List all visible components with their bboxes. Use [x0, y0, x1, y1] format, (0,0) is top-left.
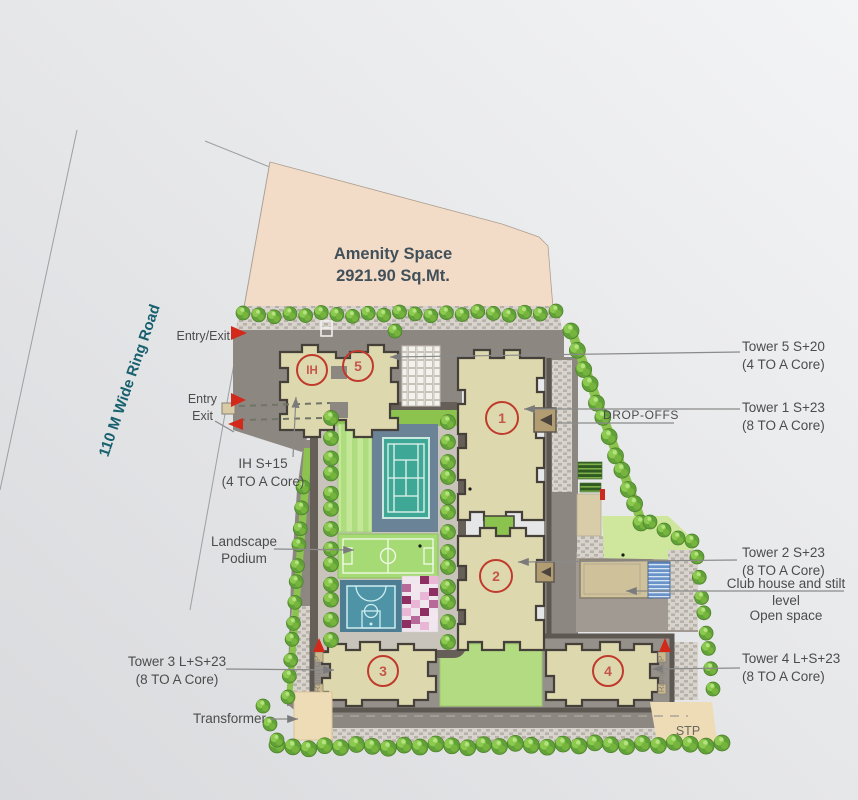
label-drop-offs: DROP-OFFS	[603, 408, 679, 422]
tower-4-footprint	[546, 642, 658, 706]
club-pool-deck	[648, 562, 670, 598]
label-ramp-up-west: Ramp UP	[312, 655, 322, 692]
southeast-walkway	[672, 642, 698, 700]
pergola2	[580, 483, 601, 492]
label-tower3-line2: (8 TO A Core)	[136, 672, 219, 687]
badge-4: 4	[604, 663, 612, 679]
tower-2-footprint	[458, 528, 544, 650]
club-deck-walk	[577, 494, 601, 536]
bird-dot-2	[621, 553, 624, 556]
label-tower4-line1: Tower 4 L+S+23	[742, 651, 840, 666]
tennis-court	[372, 424, 438, 532]
label-tower5-line1: Tower 5 S+20	[742, 339, 825, 354]
bird-dot	[418, 544, 421, 547]
label-tower5-line2: (4 TO A Core)	[742, 357, 825, 372]
label-transformer: Transformer	[193, 711, 267, 726]
label-ramp-up-east: Ramp UP	[656, 655, 666, 692]
badge-ih: IH	[306, 365, 318, 377]
label-tower3-line1: Tower 3 L+S+23	[128, 654, 226, 669]
label-ih-line2: (4 TO A Core)	[222, 474, 305, 489]
football-field	[338, 534, 438, 578]
club-walkway	[577, 536, 605, 558]
label-landscape-line2: Podium	[221, 551, 267, 566]
label-entry-exit: Entry/Exit	[177, 329, 231, 343]
site-plan-svg: 110 M Wide Ring Road Amenity Space 2921.…	[0, 0, 858, 800]
pergola	[578, 462, 602, 479]
label-tower1-line1: Tower 1 S+23	[742, 400, 825, 415]
transformer-pad	[294, 692, 332, 740]
label-tower2-line1: Tower 2 S+23	[742, 545, 825, 560]
amenity-space-title: Amenity Space	[334, 245, 452, 263]
label-tower4-line2: (8 TO A Core)	[742, 669, 825, 684]
badge-5: 5	[354, 358, 362, 374]
badge-3: 3	[379, 663, 387, 679]
label-entry: Entry	[188, 392, 218, 406]
label-landscape-line1: Landscape	[211, 534, 277, 549]
label-tower1-line2: (8 TO A Core)	[742, 418, 825, 433]
label-clubhouse-line1: Club house and stilt	[727, 576, 846, 591]
drop-off-bay-1	[534, 408, 556, 432]
label-stp: STP	[676, 724, 700, 738]
drop-off-bay-2	[536, 562, 554, 582]
badge-2: 2	[492, 568, 500, 584]
site-plan-page: 110 M Wide Ring Road Amenity Space 2921.…	[0, 0, 858, 800]
label-ih-line1: IH S+15	[238, 456, 287, 471]
parking-area	[402, 346, 440, 406]
tower-1-footprint	[458, 350, 544, 520]
clubhouse-building	[580, 560, 652, 598]
club-red-marker	[600, 489, 605, 500]
bird-dot-3	[468, 487, 471, 490]
badge-1: 1	[498, 410, 506, 426]
label-clubhouse-line3: Open space	[750, 608, 823, 623]
striped-lawn	[338, 424, 372, 532]
basketball-court	[340, 580, 402, 632]
label-clubhouse-line2: level	[772, 593, 800, 608]
amenity-space-area-value: 2921.90 Sq.Mt.	[336, 267, 450, 285]
label-exit: Exit	[192, 409, 213, 423]
